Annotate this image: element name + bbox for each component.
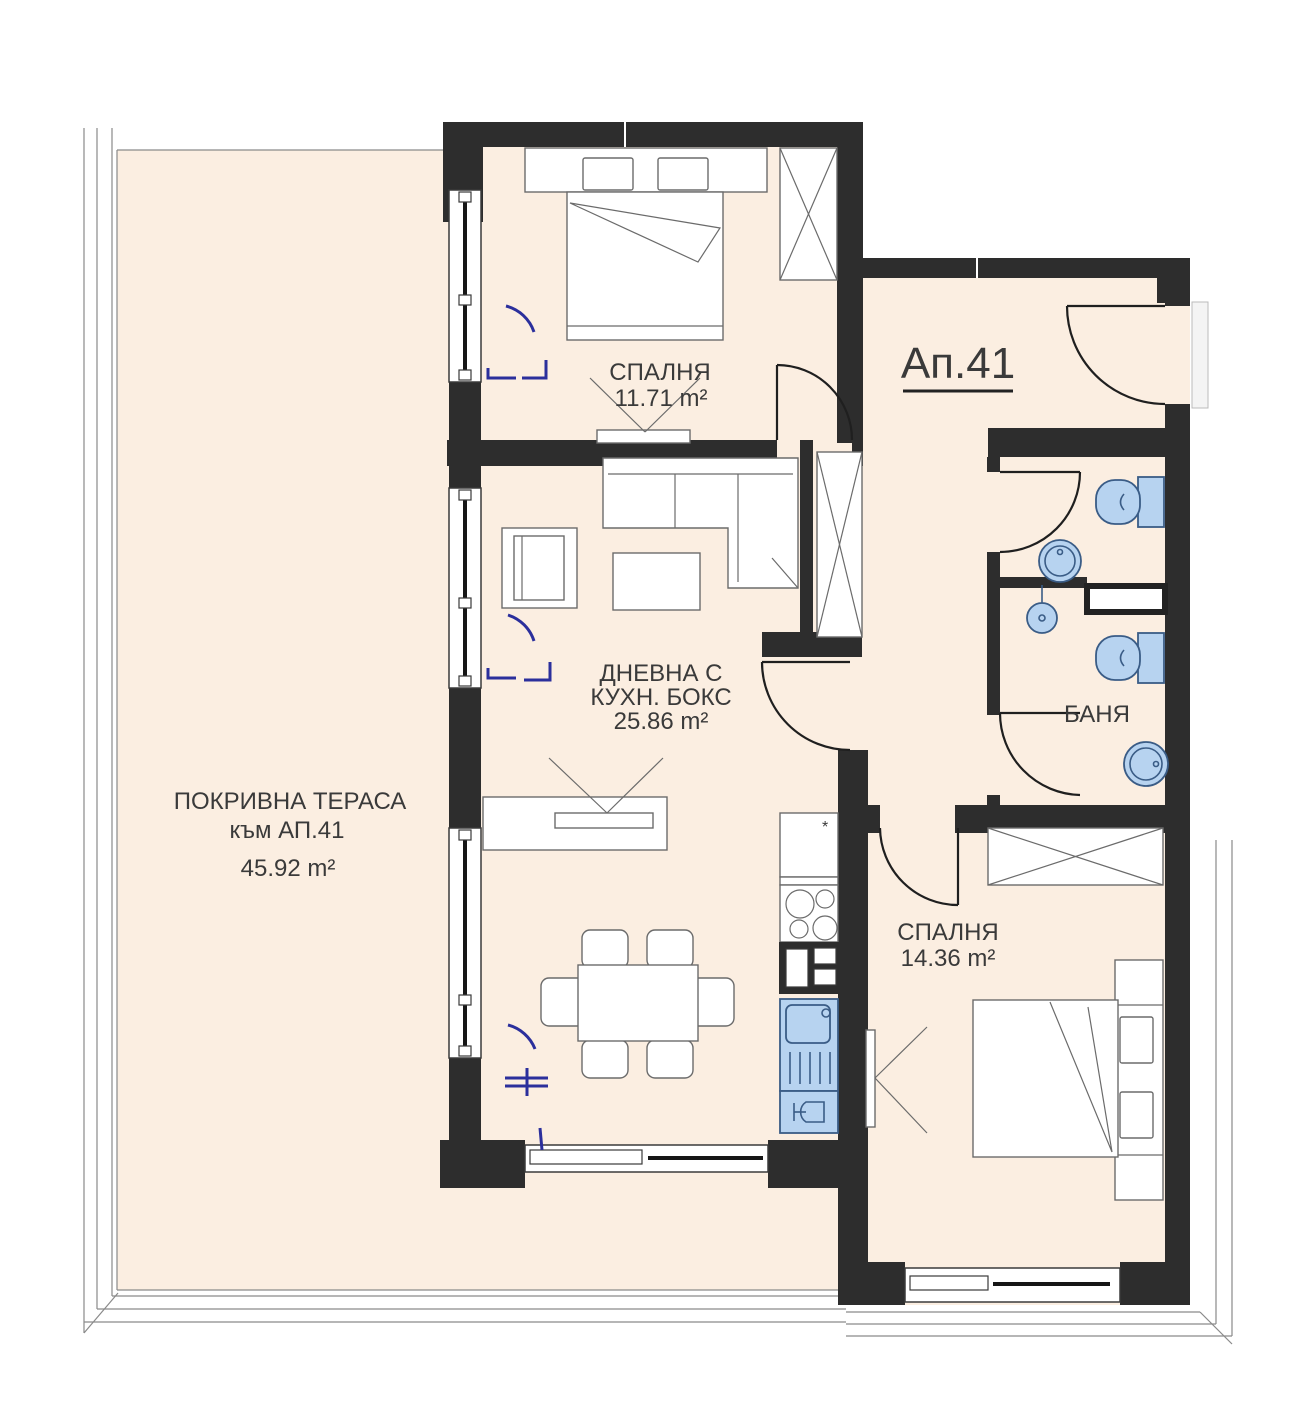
double-bed bbox=[567, 192, 723, 340]
living-south-window bbox=[525, 1145, 768, 1172]
pillow bbox=[1120, 1017, 1153, 1063]
living-window-a bbox=[449, 488, 481, 688]
terrace-area: 45.92 m² bbox=[241, 855, 336, 882]
bed-headboard-shelf bbox=[525, 148, 767, 192]
armchair bbox=[502, 528, 577, 608]
shaft-niche bbox=[1087, 586, 1165, 612]
bed-headboard-shelf bbox=[1115, 960, 1163, 1200]
kitchen-counter bbox=[780, 877, 838, 885]
pillow bbox=[1120, 1092, 1153, 1138]
bedroom-bottom-area: 14.36 m² bbox=[901, 945, 996, 972]
living-name-line2: КУХН. БОКС bbox=[590, 684, 731, 711]
bedroom-bottom-window bbox=[905, 1268, 1120, 1302]
double-bed bbox=[973, 1000, 1118, 1157]
kitchen-sink bbox=[780, 999, 838, 1091]
floor-plan-page: * bbox=[0, 0, 1293, 1409]
bathroom-toilet bbox=[1096, 633, 1164, 683]
wc-toilet bbox=[1096, 477, 1164, 527]
apartment-number-label: Ап.41 bbox=[901, 339, 1015, 388]
living-name-line1: ДНЕВНА С bbox=[600, 660, 723, 687]
cooktop bbox=[780, 885, 838, 942]
chair bbox=[582, 1040, 628, 1078]
pillow bbox=[658, 158, 708, 190]
bedroom-bottom-name: СПАЛНЯ bbox=[897, 919, 999, 946]
chair bbox=[582, 930, 628, 968]
terrace-subtitle: към АП.41 bbox=[229, 817, 344, 844]
terrace-floor bbox=[117, 150, 447, 1290]
chair bbox=[647, 930, 693, 968]
bedroom-top-window bbox=[449, 190, 481, 382]
living-window-b bbox=[449, 828, 481, 1058]
coffee-table bbox=[613, 553, 700, 610]
floor-plan-drawing: * bbox=[0, 0, 1293, 1409]
wardrobe bbox=[988, 828, 1163, 885]
wardrobe bbox=[780, 148, 837, 280]
bathroom-sink bbox=[1124, 742, 1168, 786]
oven bbox=[779, 942, 839, 994]
kitchen-strip: * bbox=[779, 813, 839, 1133]
bathroom-name: БАНЯ bbox=[1064, 701, 1130, 728]
hall-wardrobe bbox=[817, 452, 862, 637]
terrace-name: ПОКРИВНА ТЕРАСА bbox=[174, 788, 407, 815]
wc-sink bbox=[1039, 540, 1081, 582]
bedroom-top-name: СПАЛНЯ bbox=[609, 359, 711, 386]
chair bbox=[647, 1040, 693, 1078]
fridge-snowflake-icon: * bbox=[822, 819, 828, 836]
bedroom-top-area: 11.71 m² bbox=[615, 385, 708, 412]
fridge bbox=[780, 813, 838, 877]
pillow bbox=[583, 158, 633, 190]
dishwasher bbox=[780, 1091, 838, 1133]
entrance-landing bbox=[1192, 302, 1208, 408]
dining-table bbox=[578, 965, 698, 1041]
living-area: 25.86 m² bbox=[614, 708, 709, 735]
